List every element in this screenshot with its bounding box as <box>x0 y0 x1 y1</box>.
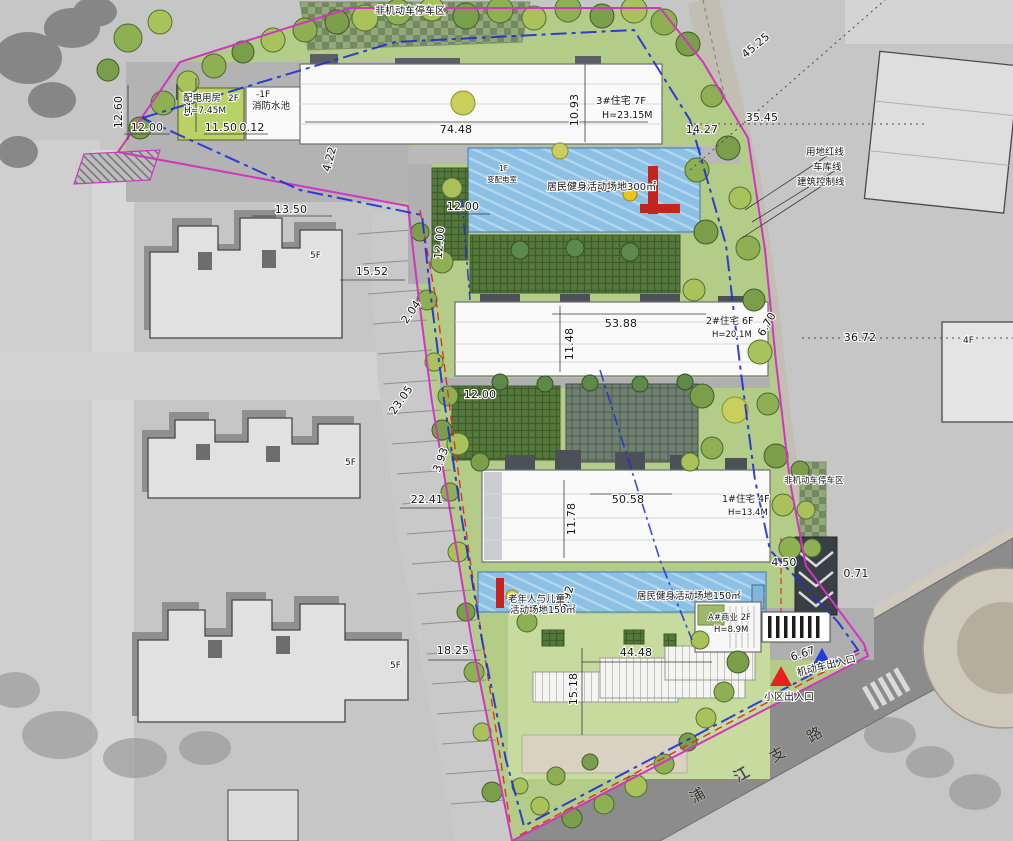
dimension-label: 4.50 <box>771 556 796 569</box>
dimension-label: 13.50 <box>275 203 308 216</box>
building-1 <box>482 450 770 562</box>
existing-building-1 <box>144 210 342 338</box>
power-room-label: 配电用房 <box>183 92 221 104</box>
dimension-label: 11.78 <box>565 503 578 536</box>
fire-pool-floor-label: -1F <box>256 90 270 100</box>
dimension-label: 11.48 <box>563 328 576 361</box>
existing-building-3-floors: 5F <box>390 661 401 671</box>
existing-building-right-mid <box>942 322 1013 422</box>
dimension-label: 12.60 <box>112 96 125 129</box>
transformer-label: 变配电室 <box>487 174 517 184</box>
elderly-children-label-1: 老年人与儿童 <box>508 593 566 605</box>
building-2-height-label: H=20.1M <box>712 330 752 340</box>
power-room-floor-label: 2F <box>228 94 239 104</box>
top-right-block <box>845 0 1013 44</box>
dimension-label: 11.50 <box>205 121 238 134</box>
dimension-label: 74.48 <box>440 123 473 136</box>
existing-building-2 <box>142 410 360 498</box>
fitness-area-300-label: 居民健身活动场地300㎡ <box>547 180 656 193</box>
dimension-label: 36.72 <box>844 331 877 344</box>
building-3-label: 3#住宅 7F <box>596 94 646 107</box>
hedge-square-3 <box>664 634 676 646</box>
dimension-label: 15.18 <box>567 673 580 706</box>
dimension-label: 12.00 <box>447 200 480 213</box>
fire-pool-label: 消防水池 <box>252 100 291 112</box>
dimension-label: 12.00 <box>464 388 497 401</box>
community-entrance-label: 小区出入口 <box>764 690 814 703</box>
hedge-square-1 <box>542 630 564 646</box>
site-plan-canvas: 12.60 12.00 9.48 11.50 0.12 74.48 10.93 … <box>0 0 1013 841</box>
transformer-floor-label: 1F <box>499 164 508 173</box>
dimension-label: 35.45 <box>746 111 779 124</box>
building-1-label: 1#住宅 4F <box>722 493 770 505</box>
existing-building-right-floors: 4F <box>963 336 974 346</box>
dimension-label: 10.93 <box>568 94 581 127</box>
control-line-label: 建筑控制线 <box>797 176 845 188</box>
building-a-height-label: H=8.9M <box>714 625 748 635</box>
dimension-label: 12.00 <box>131 121 164 134</box>
left-street <box>92 150 134 840</box>
dimension-label: 50.58 <box>612 493 645 506</box>
red-line-label: 用地红线 <box>806 146 845 158</box>
dimension-label: 18.25 <box>437 644 470 657</box>
existing-building-right-top <box>864 51 1013 213</box>
hatched-strip <box>74 150 160 184</box>
hedge-square-2 <box>624 630 644 644</box>
building-2-label: 2#住宅 6F <box>706 315 754 327</box>
existing-building-4 <box>228 790 298 841</box>
grass-paver-court <box>566 384 698 462</box>
dimension-label: 0.12 <box>239 121 264 134</box>
power-room-height-label: H=7.45M <box>184 106 226 116</box>
garage-line-label: 车库线 <box>813 161 842 173</box>
dimension-label: 22.41 <box>411 493 444 506</box>
elderly-children-label-2: 活动场地150㎡ <box>510 604 576 616</box>
bike-parking-top-label: 非机动车停车区 <box>375 4 445 17</box>
dimension-label: 0.71 <box>843 567 868 580</box>
building-1-height-label: H=13.4M <box>728 508 768 518</box>
dimension-label: 44.48 <box>620 646 653 659</box>
existing-building-2-floors: 5F <box>345 458 356 468</box>
site-plan-drawing: 12.60 12.00 9.48 11.50 0.12 74.48 10.93 … <box>0 0 1013 841</box>
dimension-label: 15.52 <box>356 265 389 278</box>
bike-parking-right-label: 非机动车停车区 <box>784 475 844 486</box>
existing-building-1-floors: 5F <box>310 251 321 261</box>
dimension-label: 14.27 <box>686 123 719 136</box>
dimension-label: 53.88 <box>605 317 638 330</box>
entrance-gate <box>762 612 830 642</box>
fitness-area-150-label: 居民健身活动场地150㎡ <box>637 590 741 602</box>
cross-street <box>0 352 430 400</box>
building-a-label: A#商业 2F <box>708 612 751 623</box>
building-3-height-label: H=23.15M <box>602 110 653 121</box>
